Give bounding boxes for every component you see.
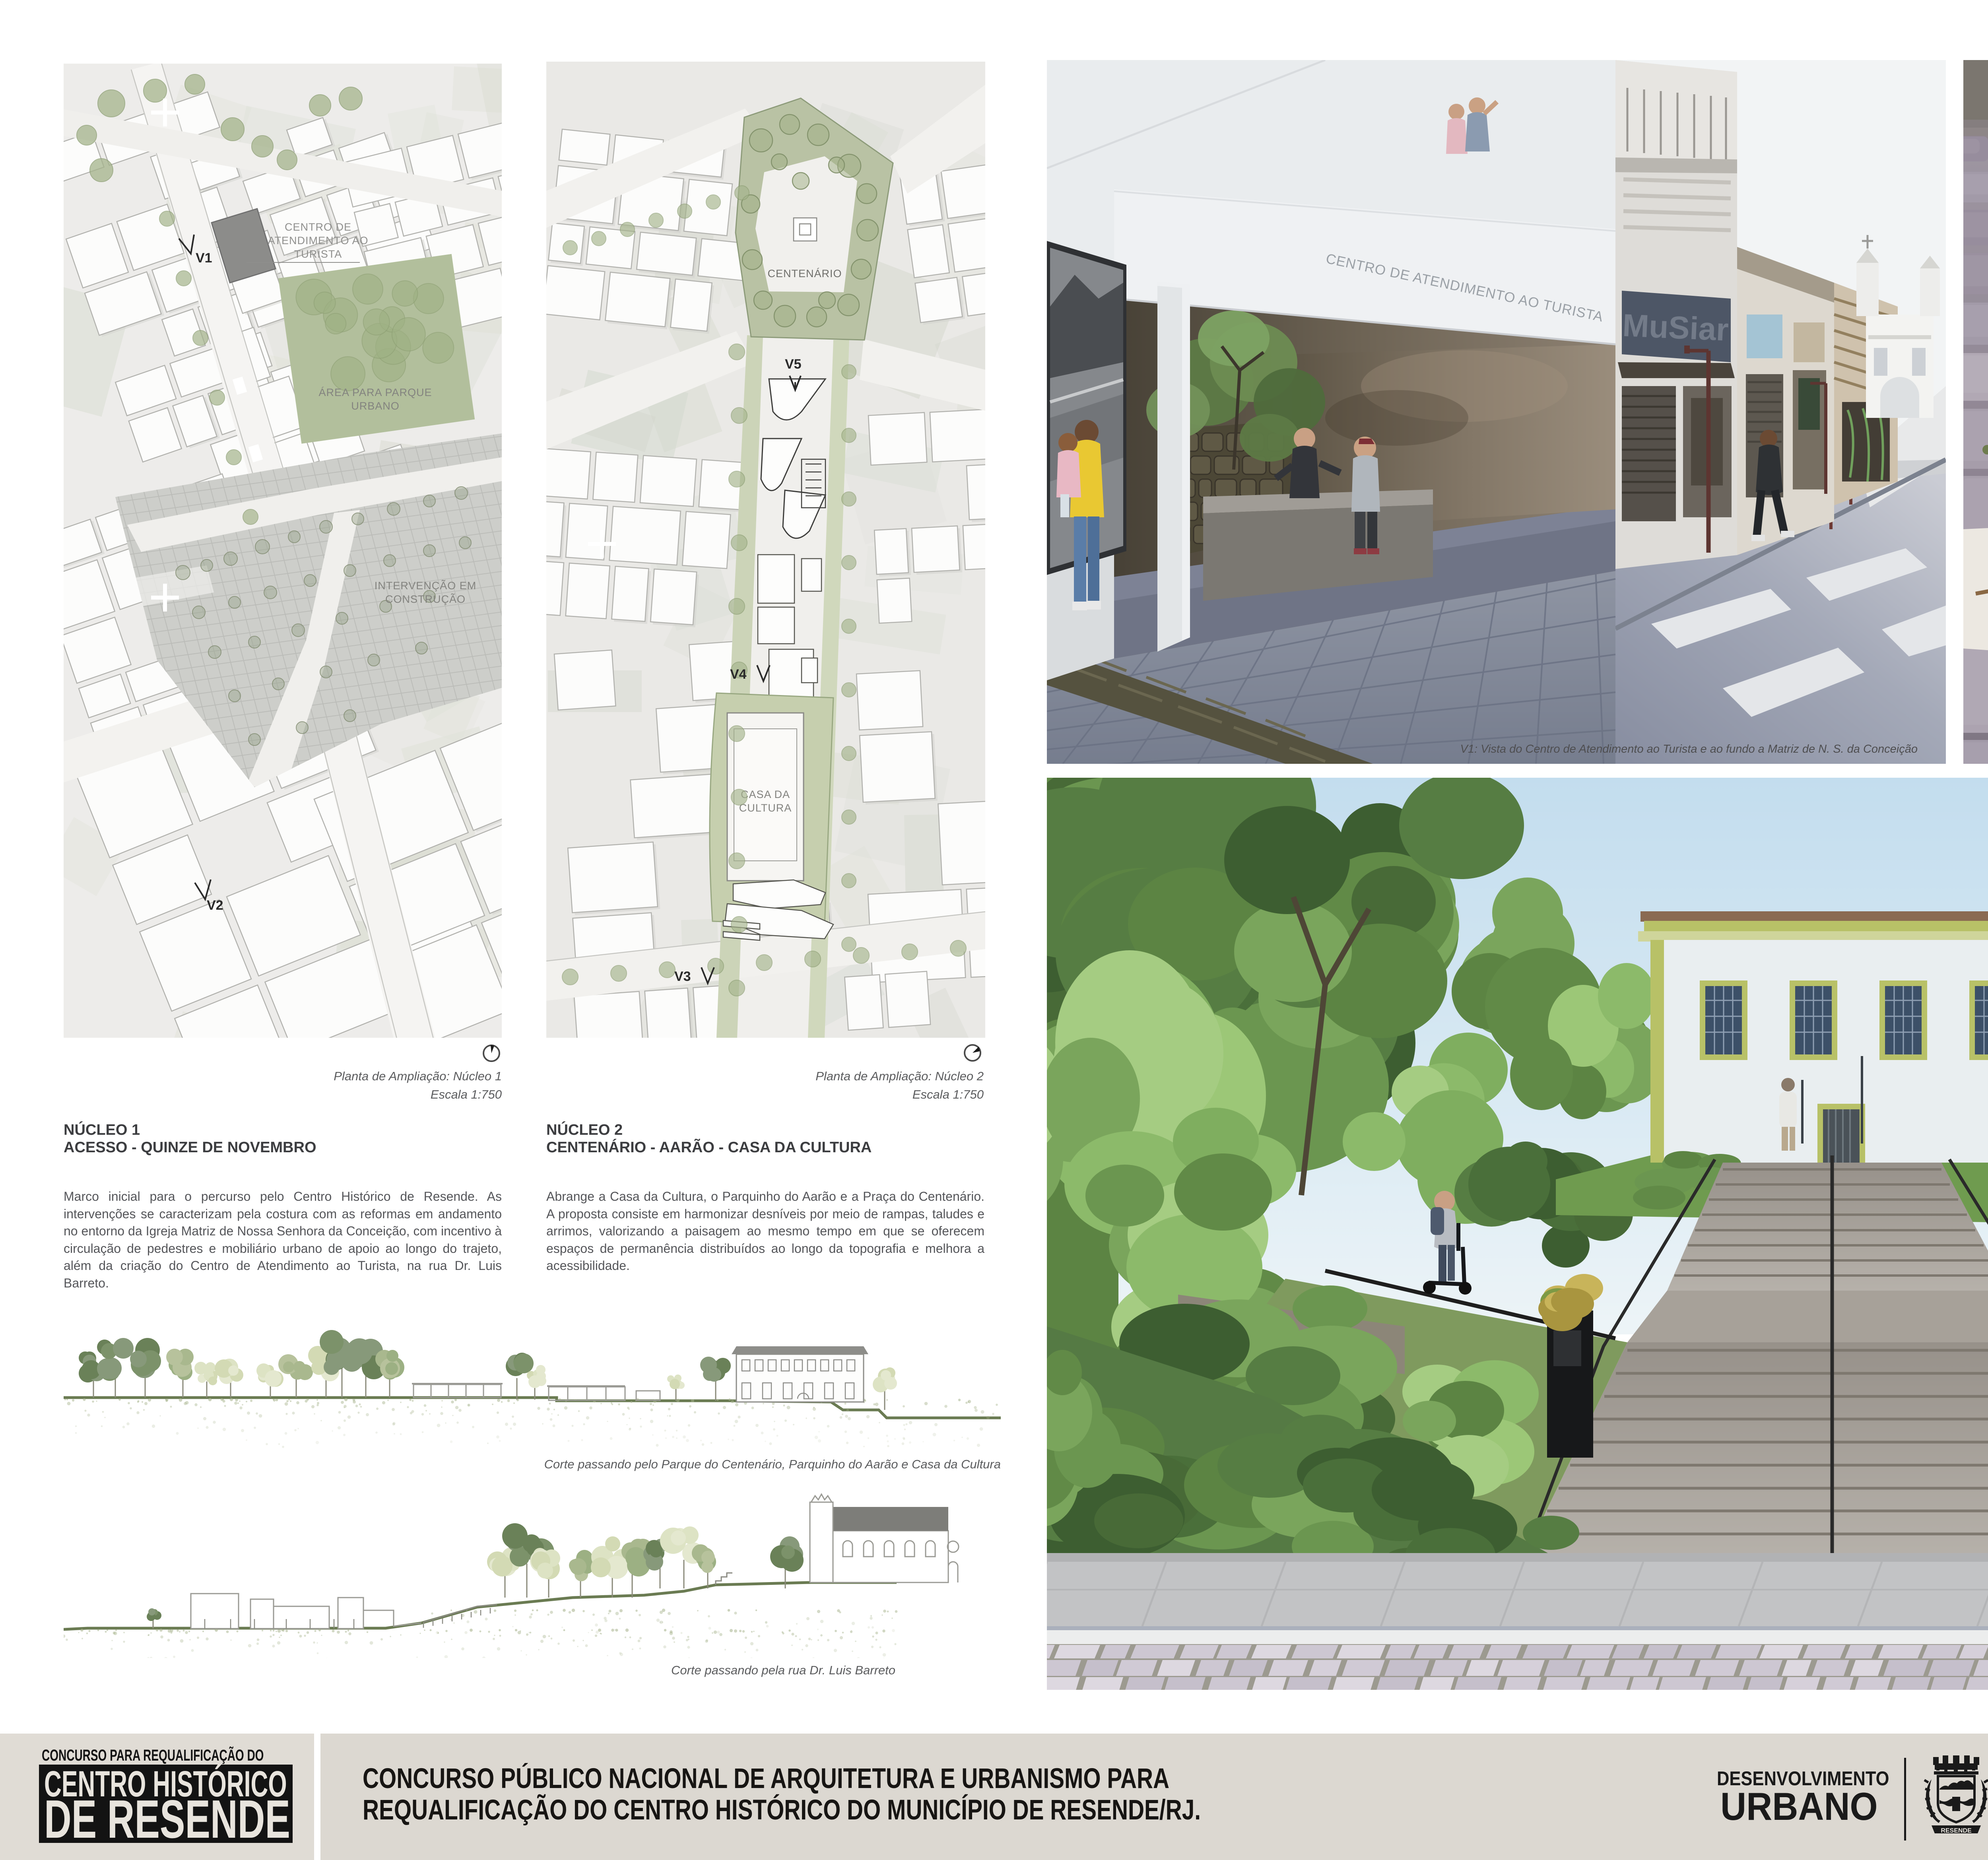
svg-text:TURISTA: TURISTA xyxy=(294,248,342,260)
svg-text:MuSiar: MuSiar xyxy=(1622,307,1729,348)
svg-text:V2: V2 xyxy=(207,898,223,913)
svg-text:CONSTRUÇÃO: CONSTRUÇÃO xyxy=(385,593,466,605)
svg-text:CULTURA: CULTURA xyxy=(739,802,792,814)
svg-text:CASA DA: CASA DA xyxy=(741,788,790,800)
svg-text:CENTRO DE: CENTRO DE xyxy=(285,221,351,233)
svg-text:V1: V1 xyxy=(196,250,212,266)
svg-text:RESENDE: RESENDE xyxy=(1941,1827,1972,1834)
svg-text:ATENDIMENTO AO: ATENDIMENTO AO xyxy=(268,235,368,247)
svg-text:V1: Vista do Centro de Atendim: V1: Vista do Centro de Atendimento ao Tu… xyxy=(1460,743,1918,755)
svg-text:URBANO: URBANO xyxy=(351,400,400,412)
svg-text:CENTENÁRIO: CENTENÁRIO xyxy=(767,268,842,280)
svg-text:ÁREA PARA PARQUE: ÁREA PARA PARQUE xyxy=(318,386,432,398)
svg-text:V3: V3 xyxy=(674,969,691,984)
svg-text:INTERVENÇÃO EM: INTERVENÇÃO EM xyxy=(375,579,477,592)
svg-text:V5: V5 xyxy=(785,357,802,372)
svg-text:V4: V4 xyxy=(730,667,747,682)
